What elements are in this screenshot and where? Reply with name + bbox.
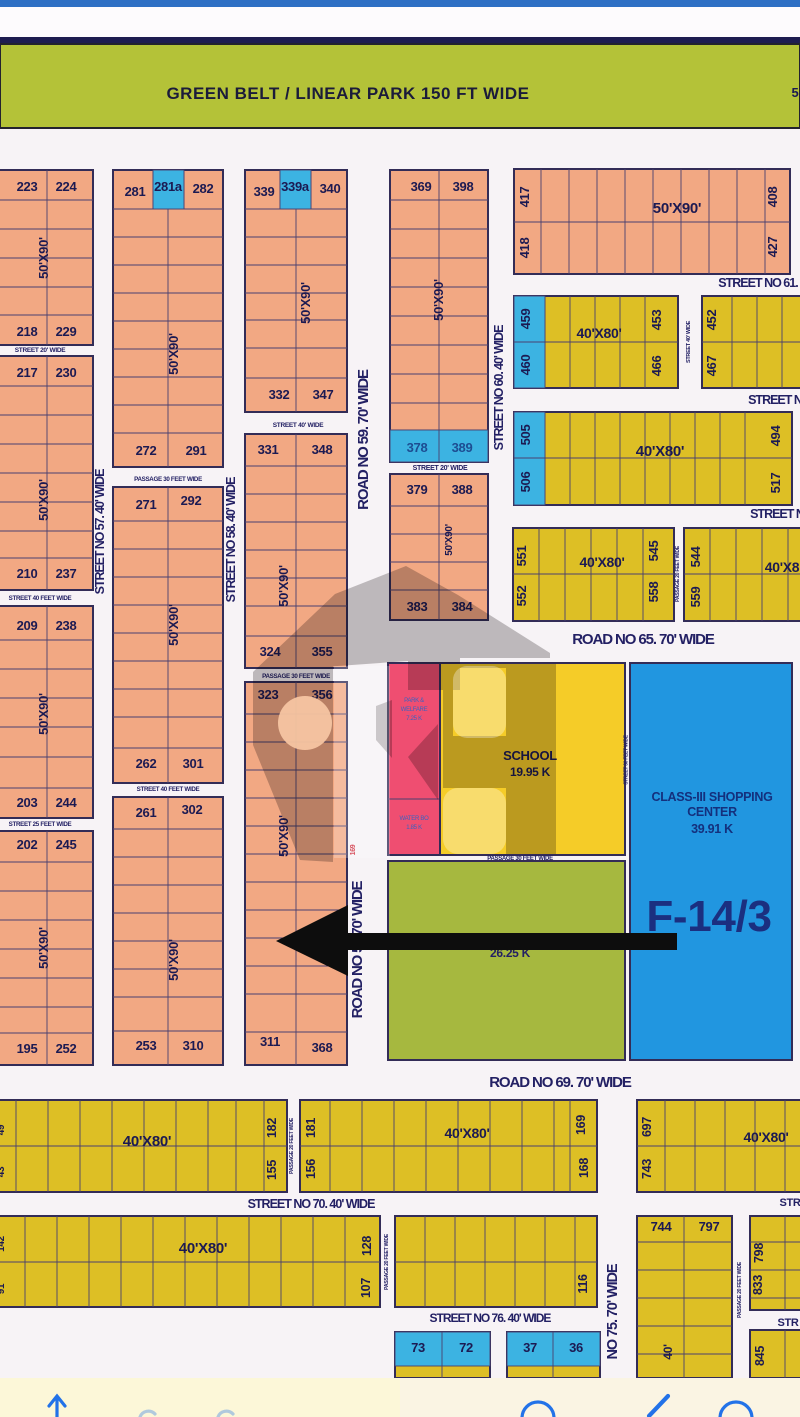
svg-text:STREET NO 57. 40' WIDE: STREET NO 57. 40' WIDE [93,469,107,594]
svg-text:494: 494 [768,425,783,447]
svg-text:743: 743 [640,1159,654,1179]
svg-text:218: 218 [17,324,38,339]
svg-text:156: 156 [304,1159,318,1179]
svg-text:1.85 K: 1.85 K [406,825,422,831]
svg-text:STREET 25 FEET WIDE: STREET 25 FEET WIDE [9,821,72,828]
svg-text:408: 408 [765,187,780,208]
svg-text:203: 203 [17,795,38,810]
svg-text:460: 460 [518,355,533,376]
svg-text:50'X90': 50'X90' [166,333,181,375]
svg-text:STREET NO 70. 40' WIDE: STREET NO 70. 40' WIDE [248,1197,376,1211]
svg-text:798: 798 [752,1243,766,1263]
svg-text:551: 551 [514,546,529,567]
svg-text:238: 238 [56,618,77,633]
svg-text:50'X90': 50'X90' [36,693,51,735]
svg-text:230: 230 [56,365,77,380]
svg-text:ROAD NO 65. 70' WIDE: ROAD NO 65. 70' WIDE [572,631,715,648]
svg-text:389: 389 [452,440,473,455]
svg-text:209: 209 [17,618,38,633]
svg-text:418: 418 [517,238,532,259]
svg-text:PASSAGE 20 FEET WIDE: PASSAGE 20 FEET WIDE [289,1117,295,1174]
svg-text:50'X90': 50'X90' [36,479,51,521]
svg-text:155: 155 [265,1160,279,1180]
svg-text:229: 229 [56,324,77,339]
svg-text:STREET N: STREET N [750,507,800,521]
svg-text:50'X90': 50'X90' [431,279,446,321]
svg-text:ROAD NO 59. 70' WIDE: ROAD NO 59. 70' WIDE [355,369,372,510]
svg-text:181: 181 [304,1118,318,1138]
svg-text:128: 128 [360,1236,374,1256]
svg-text:282: 282 [193,181,214,196]
svg-text:237: 237 [56,566,77,581]
svg-text:STR: STR [777,1317,798,1329]
svg-text:833: 833 [751,1275,765,1295]
svg-text:STREET N: STREET N [748,393,800,407]
svg-text:50'X90': 50'X90' [166,604,181,646]
svg-text:CLASS-III SHOPPING: CLASS-III SHOPPING [651,790,772,804]
svg-text:348: 348 [312,442,333,457]
svg-text:116: 116 [576,1274,590,1294]
svg-text:49: 49 [0,1124,7,1135]
svg-text:202: 202 [17,837,38,852]
svg-text:ROAD NO 69. 70' WIDE: ROAD NO 69. 70' WIDE [489,1074,632,1091]
svg-text:388: 388 [452,482,473,497]
svg-text:292: 292 [181,493,202,508]
svg-text:506: 506 [518,472,533,493]
svg-text:195: 195 [17,1041,38,1056]
svg-text:50'X90': 50'X90' [298,282,313,324]
svg-text:91: 91 [0,1283,7,1294]
svg-text:339: 339 [254,184,275,199]
svg-text:332: 332 [269,387,290,402]
svg-text:40'X80': 40'X80' [444,1125,489,1141]
svg-text:378: 378 [407,440,428,455]
svg-text:PARK &: PARK & [404,698,424,704]
svg-text:331: 331 [258,442,279,457]
svg-text:40'X80': 40'X80' [576,325,621,341]
svg-text:WATER BO: WATER BO [400,816,430,822]
svg-text:142: 142 [0,1235,7,1252]
svg-text:217: 217 [17,365,38,380]
svg-text:73: 73 [411,1340,425,1355]
svg-text:210: 210 [17,566,38,581]
svg-text:310: 310 [183,1038,204,1053]
svg-text:50'X90': 50'X90' [444,524,455,556]
svg-text:311: 311 [260,1034,280,1049]
svg-text:PASSAGE 30 FEET WIDE: PASSAGE 30 FEET WIDE [134,476,202,483]
svg-text:STREET NO 60. 40' WIDE: STREET NO 60. 40' WIDE [492,325,506,450]
svg-text:398: 398 [453,179,474,194]
svg-text:369: 369 [411,179,432,194]
svg-text:40'X80': 40'X80' [123,1133,171,1150]
svg-text:459: 459 [518,309,533,330]
svg-text:379: 379 [407,482,428,497]
svg-text:182: 182 [265,1118,279,1138]
svg-text:107: 107 [359,1278,373,1298]
svg-text:PASSAGE 20 FEET WIDE: PASSAGE 20 FEET WIDE [737,1261,743,1318]
svg-text:NO 75. 70' WIDE: NO 75. 70' WIDE [605,1263,621,1359]
svg-text:271: 271 [136,497,157,512]
svg-text:340: 340 [320,181,341,196]
svg-text:744: 744 [651,1219,673,1234]
svg-text:40'X80': 40'X80' [179,1240,227,1257]
svg-text:40'X80': 40'X80' [743,1129,788,1145]
svg-text:CENTER: CENTER [687,805,737,819]
svg-text:50'X90': 50'X90' [166,939,181,981]
svg-text:467: 467 [704,356,719,377]
svg-text:517: 517 [768,473,783,494]
svg-text:STREET 40' WIDE: STREET 40' WIDE [686,320,692,363]
svg-text:PASSAGE 20 FEET WIDE: PASSAGE 20 FEET WIDE [675,545,681,602]
svg-text:168: 168 [577,1158,591,1178]
svg-text:STREET NO 61.: STREET NO 61. [718,276,798,290]
svg-text:466: 466 [649,356,664,377]
svg-text:452: 452 [704,310,719,331]
svg-text:40'X8: 40'X8 [765,559,800,575]
svg-text:417: 417 [517,187,532,208]
svg-text:STREET 30 FEET WIDE: STREET 30 FEET WIDE [624,734,630,785]
svg-text:261: 261 [136,805,157,820]
svg-text:427: 427 [765,237,780,258]
svg-text:STREET 20' WIDE: STREET 20' WIDE [413,465,468,472]
svg-text:697: 697 [640,1117,654,1137]
svg-text:262: 262 [136,756,157,771]
svg-text:STREET 40 FEET WIDE: STREET 40 FEET WIDE [137,786,200,793]
svg-text:244: 244 [56,795,78,810]
svg-text:281a: 281a [154,179,183,194]
svg-text:552: 552 [514,586,529,607]
svg-text:245: 245 [56,837,77,852]
svg-text:50'X90': 50'X90' [653,200,701,217]
svg-text:347: 347 [313,387,334,402]
svg-text:39.91 K: 39.91 K [691,822,733,836]
svg-text:281: 281 [125,184,146,199]
svg-text:252: 252 [56,1041,77,1056]
svg-text:37: 37 [523,1340,537,1355]
svg-text:368: 368 [312,1040,333,1055]
svg-text:43: 43 [0,1166,7,1177]
svg-text:STREET NO 58. 40' WIDE: STREET NO 58. 40' WIDE [224,477,238,602]
svg-text:5: 5 [792,85,799,100]
svg-text:224: 224 [56,179,78,194]
svg-text:40'X80': 40'X80' [636,443,684,460]
svg-text:505: 505 [518,425,533,446]
svg-text:339a: 339a [281,179,310,194]
svg-text:797: 797 [699,1219,720,1234]
svg-text:GREEN BELT / LINEAR PARK 150 F: GREEN BELT / LINEAR PARK 150 FT WIDE [166,84,529,103]
svg-text:845: 845 [753,1346,767,1366]
svg-text:PASSAGE 20 FEET WIDE: PASSAGE 20 FEET WIDE [384,1233,390,1290]
svg-text:WELFARE: WELFARE [401,707,428,713]
svg-text:STREET 40 FEET WIDE: STREET 40 FEET WIDE [9,595,72,602]
svg-text:223: 223 [17,179,38,194]
svg-text:40'X80': 40'X80' [579,554,624,570]
svg-text:558: 558 [646,582,661,603]
svg-text:301: 301 [183,756,204,771]
svg-text:169: 169 [574,1115,588,1135]
svg-text:50'X90': 50'X90' [36,237,51,279]
svg-text:36: 36 [569,1340,583,1355]
svg-text:253: 253 [136,1038,157,1053]
svg-text:302: 302 [182,802,203,817]
svg-text:50'X90': 50'X90' [36,927,51,969]
svg-text:STR: STR [779,1197,800,1209]
svg-text:STREET NO 76. 40' WIDE: STREET NO 76. 40' WIDE [430,1311,552,1325]
svg-text:272: 272 [136,443,157,458]
svg-text:545: 545 [646,541,661,562]
svg-text:559: 559 [688,587,703,608]
svg-text:453: 453 [649,310,664,331]
svg-text:72: 72 [459,1340,473,1355]
svg-text:STREET 20' WIDE: STREET 20' WIDE [15,347,66,354]
svg-text:STREET 40' WIDE: STREET 40' WIDE [273,422,324,429]
svg-text:544: 544 [688,546,703,568]
svg-text:291: 291 [186,443,207,458]
svg-text:7.25 K: 7.25 K [406,716,422,722]
svg-text:40': 40' [661,1344,675,1360]
svg-text:50'X90': 50'X90' [276,565,291,607]
